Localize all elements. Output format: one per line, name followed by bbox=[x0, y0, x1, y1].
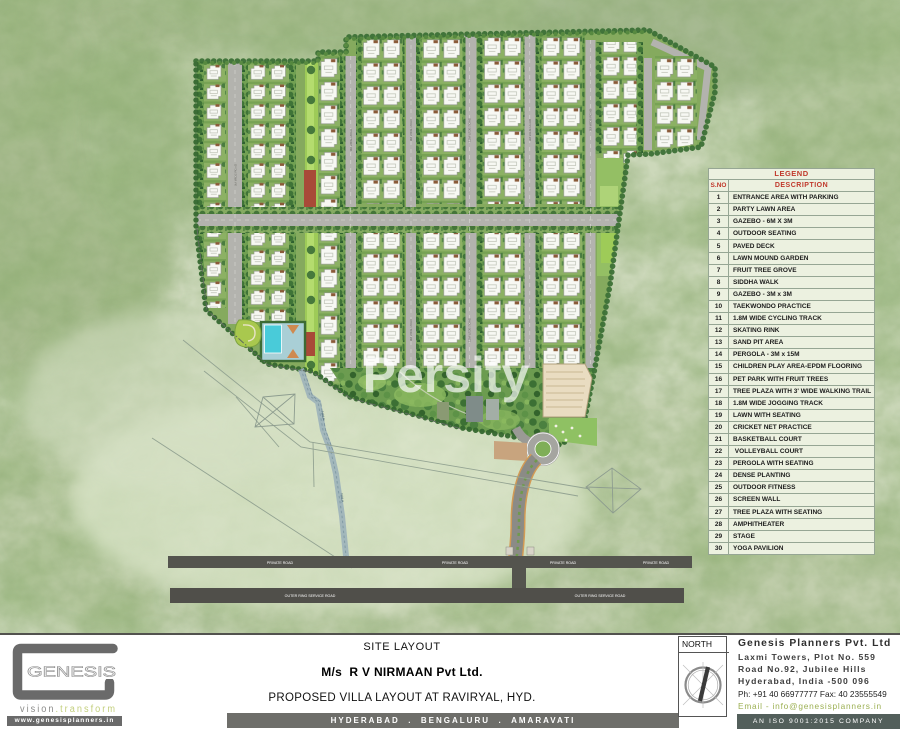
svg-text:GENESIS: GENESIS bbox=[27, 664, 116, 681]
svg-text:vision.transform: vision.transform bbox=[20, 704, 117, 715]
svg-text:Persity: Persity bbox=[363, 347, 530, 403]
svg-text:9M WIDE ROAD: 9M WIDE ROAD bbox=[589, 108, 593, 131]
svg-text:OUTER RING SERVICE ROAD: OUTER RING SERVICE ROAD bbox=[575, 594, 626, 598]
svg-text:9M WIDE ROAD: 9M WIDE ROAD bbox=[409, 318, 413, 341]
svg-text:9M WIDE ROAD: 9M WIDE ROAD bbox=[349, 128, 353, 151]
svg-text:9M WIDE ROAD: 9M WIDE ROAD bbox=[234, 163, 238, 186]
svg-text:PRIVATE ROAD: PRIVATE ROAD bbox=[643, 561, 670, 565]
svg-text:12M WIDE ROAD: 12M WIDE ROAD bbox=[468, 117, 472, 142]
svg-text:12M WIDE ROAD: 12M WIDE ROAD bbox=[468, 317, 472, 342]
svg-text:OUTER RING SERVICE ROAD: OUTER RING SERVICE ROAD bbox=[285, 594, 336, 598]
svg-text:9M WIDE ROAD: 9M WIDE ROAD bbox=[528, 118, 532, 141]
svg-text:PRIVATE ROAD: PRIVATE ROAD bbox=[442, 561, 469, 565]
svg-text:PRIVATE ROAD: PRIVATE ROAD bbox=[267, 561, 294, 565]
svg-text:PRIVATE ROAD: PRIVATE ROAD bbox=[550, 561, 577, 565]
svg-text:9M WIDE ROAD: 9M WIDE ROAD bbox=[409, 118, 413, 141]
